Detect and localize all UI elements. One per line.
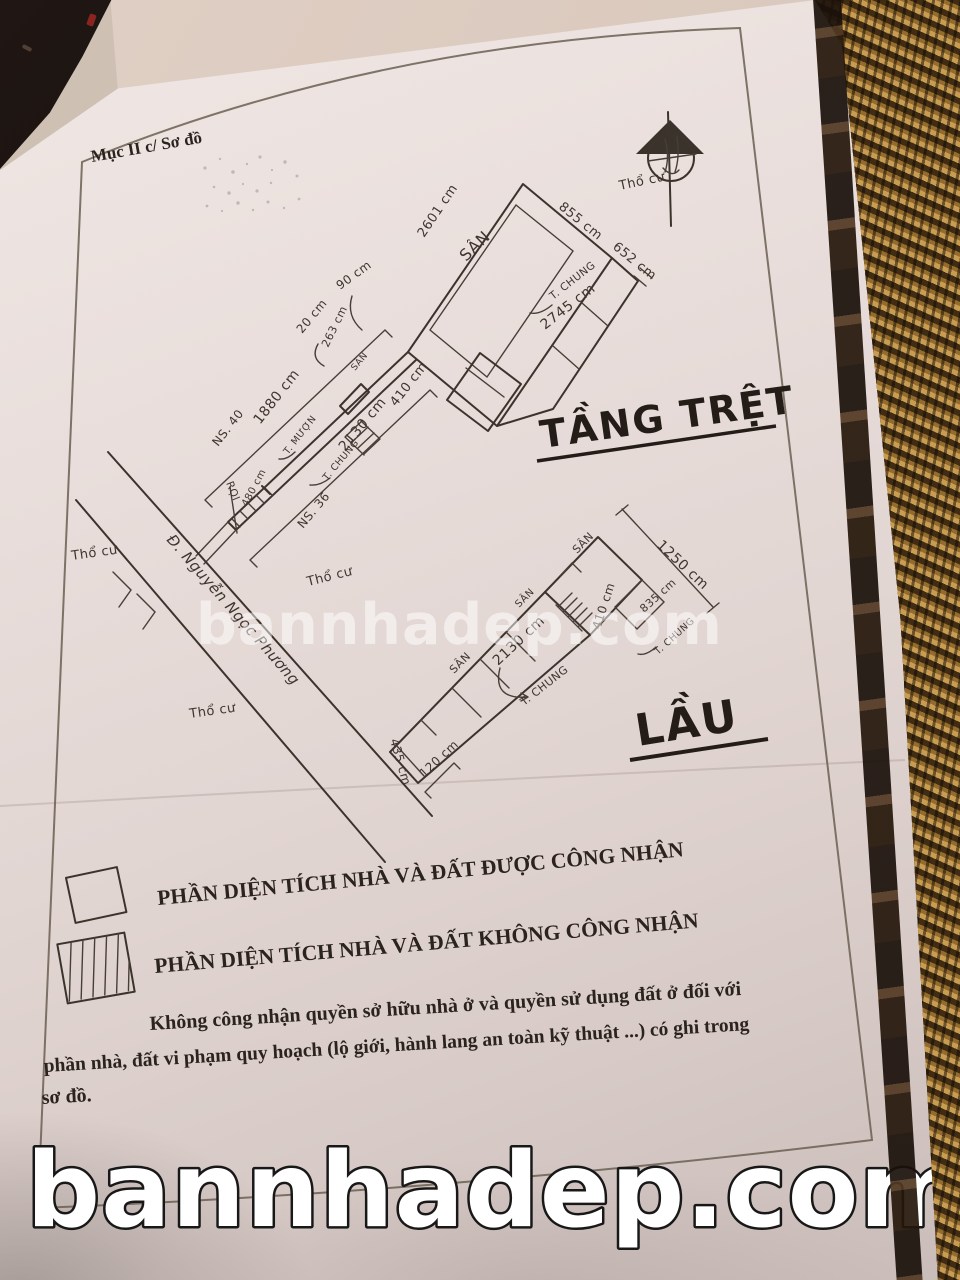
tho-cu-mid: Thổ cư bbox=[304, 564, 354, 590]
wall-label-tchung-bottom: T. CHUNG bbox=[517, 663, 571, 709]
legend-swatch-recognized bbox=[66, 867, 126, 923]
dim-label-20: 20 cm bbox=[294, 296, 330, 336]
dim-label-435: 435 cm bbox=[387, 737, 414, 787]
paper-crease bbox=[0, 760, 905, 806]
dim-label-2130-ground: 2130 cm bbox=[336, 395, 390, 455]
compass-icon bbox=[636, 112, 704, 226]
dim-label-120: 120 cm bbox=[416, 737, 461, 780]
compass-label: Thổ cư bbox=[617, 169, 667, 194]
tho-cu-bottom: Thổ cư bbox=[187, 701, 237, 723]
pencil-dots bbox=[203, 155, 300, 212]
document-artwork: Mục II c/ Sơ đồ Thổ cư bbox=[0, 0, 960, 1280]
note-line-3: sơ đồ. bbox=[41, 1084, 92, 1109]
tho-cu-left: Thổ cư bbox=[69, 543, 119, 565]
section-label: Mục II c/ Sơ đồ bbox=[89, 128, 203, 166]
house-no-40: NS. 40 bbox=[209, 407, 246, 449]
dim-label-1880: 1880 cm bbox=[251, 366, 304, 427]
dim-label-2601: 2601 cm bbox=[415, 182, 461, 241]
roi-label: RỌI bbox=[223, 480, 242, 503]
yard-label-big: SÂN bbox=[456, 227, 494, 265]
legend-swatch-not-recognized bbox=[57, 933, 134, 1004]
legend-recognized-label: PHẦN DIỆN TÍCH NHÀ VÀ ĐẤT ĐƯỢC CÔNG NHẬN bbox=[156, 837, 685, 910]
watermark-bottom: bannhadep.com bbox=[26, 1131, 960, 1251]
dim-label-90: 90 cm bbox=[334, 258, 374, 293]
ground-floor-title: TẦNG TRỆT bbox=[536, 373, 797, 457]
wall-label-tmuon: T. MƯỢN bbox=[281, 414, 319, 458]
watermark-center: bannhadep.com bbox=[196, 592, 723, 658]
house-no-36: NS. 36 bbox=[295, 489, 333, 531]
legend-not-recognized-label: PHẦN DIỆN TÍCH NHÀ VÀ ĐẤT KHÔNG CÔNG NHẬ… bbox=[153, 908, 699, 978]
dim-label-855: 855 cm bbox=[555, 199, 605, 243]
